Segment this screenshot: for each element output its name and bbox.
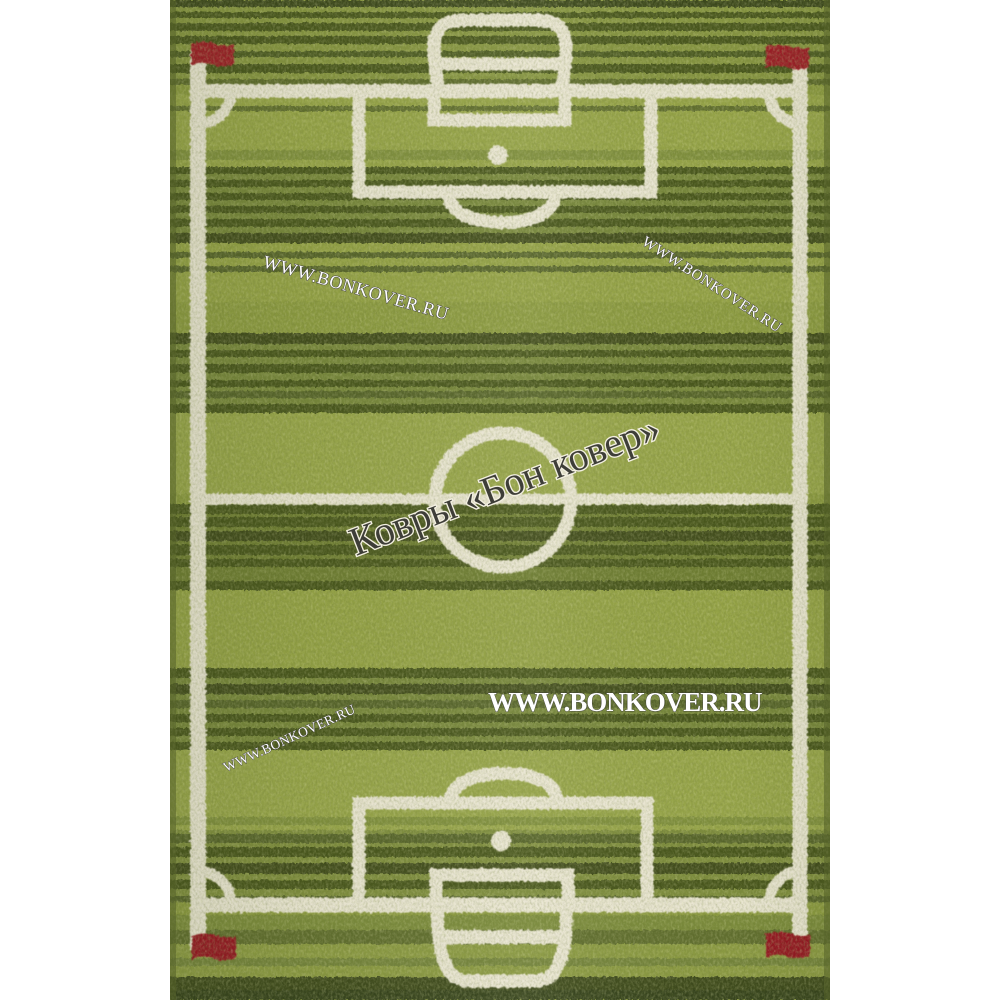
svg-text:WWW.BONKOVER.RU: WWW.BONKOVER.RU <box>488 687 762 717</box>
